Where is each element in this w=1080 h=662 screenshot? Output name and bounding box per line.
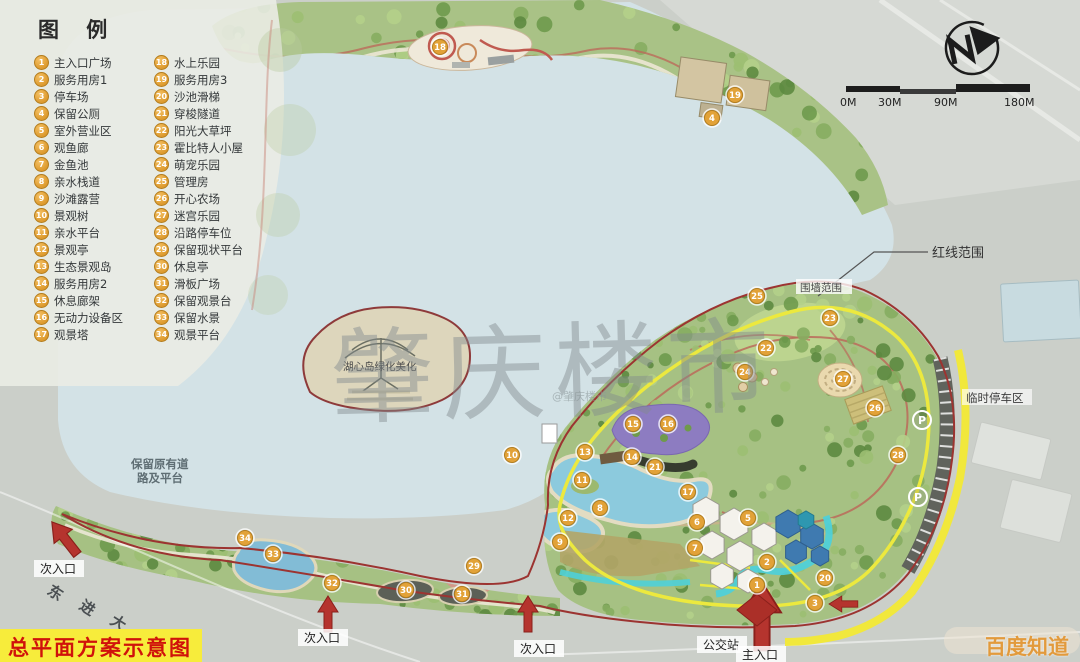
legend-item: 4保留公厕: [34, 105, 152, 122]
legend-item-label: 管理房: [174, 174, 209, 190]
secondary-entrance-label: 次入口: [520, 642, 556, 656]
legend-item: 25管理房: [154, 173, 272, 190]
legend-badge: 26: [154, 191, 169, 206]
legend-item-label: 沿路停车位: [174, 225, 232, 241]
legend-badge: 19: [154, 72, 169, 87]
map-marker-number: 24: [739, 368, 751, 378]
map-marker: 17: [679, 483, 697, 501]
map-marker: 3: [806, 594, 824, 612]
legend-item: 32保留观景台: [154, 292, 272, 309]
legend-badge: 27: [154, 208, 169, 223]
map-marker-number: 9: [557, 538, 563, 548]
legend-badge: 33: [154, 310, 169, 325]
legend-item: 31滑板广场: [154, 275, 272, 292]
map-marker: 11: [573, 471, 591, 489]
legend-item: 29保留现状平台: [154, 241, 272, 258]
legend-item-label: 保留水景: [174, 310, 220, 326]
legend-item: 9沙滩露营: [34, 190, 152, 207]
red-line-label: 红线范围: [932, 245, 984, 261]
map-marker-number: 21: [649, 463, 661, 473]
map-marker: 18: [431, 38, 449, 56]
legend-badge: 31: [154, 276, 169, 291]
hex-building: [811, 546, 828, 566]
map-marker: 30: [397, 581, 415, 599]
parking-symbol: P: [914, 491, 922, 504]
legend-item-label: 开心农场: [174, 191, 220, 207]
legend-item-label: 景观树: [54, 208, 89, 224]
map-marker-number: 19: [729, 91, 741, 101]
legend-item: 18水上乐园: [154, 54, 272, 71]
map-marker-number: 22: [760, 344, 772, 354]
legend-badge: 3: [34, 89, 49, 104]
map-marker-number: 20: [819, 574, 831, 584]
legend-item: 20沙池滑梯: [154, 88, 272, 105]
parking-marker: P: [909, 488, 927, 506]
legend-item: 16无动力设备区: [34, 309, 152, 326]
map-marker-number: 8: [597, 504, 603, 514]
map-marker-number: 12: [562, 514, 574, 524]
scale-0: 0M: [840, 96, 857, 109]
legend-item: 33保留水景: [154, 309, 272, 326]
map-marker: 28: [889, 446, 907, 464]
legend-badge: 32: [154, 293, 169, 308]
map-marker-number: 1: [754, 581, 760, 591]
legend-item-label: 保留现状平台: [174, 242, 243, 258]
legend-item: 11亲水平台: [34, 224, 152, 241]
map-marker-number: 16: [662, 420, 674, 430]
legend-item-label: 景观亭: [54, 242, 89, 258]
legend-badge: 1: [34, 55, 49, 70]
legend-title: 图 例: [38, 14, 274, 44]
legend-badge: 11: [34, 225, 49, 240]
legend-item-label: 休息亭: [174, 259, 209, 275]
legend-item: 1主入口广场: [34, 54, 152, 71]
legend-item-label: 室外营业区: [54, 123, 112, 139]
map-marker: 32: [323, 574, 341, 592]
map-marker: 13: [576, 443, 594, 461]
legend-item-label: 亲水平台: [54, 225, 100, 241]
map-marker: 24: [736, 363, 754, 381]
legend-badge: 21: [154, 106, 169, 121]
map-marker-number: 32: [326, 579, 338, 589]
map-marker-number: 13: [579, 448, 591, 458]
legend-badge: 30: [154, 259, 169, 274]
legend-badge: 20: [154, 89, 169, 104]
legend-item: 10景观树: [34, 207, 152, 224]
legend-badge: 14: [34, 276, 49, 291]
legend-item-label: 沙池滑梯: [174, 89, 220, 105]
map-marker-number: 14: [626, 453, 638, 463]
map-marker-number: 31: [456, 590, 468, 600]
map-marker-number: 6: [694, 518, 700, 528]
legend-badge: 22: [154, 123, 169, 138]
map-marker: 26: [866, 399, 884, 417]
map-marker: 15: [624, 415, 642, 433]
legend-item: 12景观亭: [34, 241, 152, 258]
legend-item: 3停车场: [34, 88, 152, 105]
map-marker: 14: [623, 448, 641, 466]
map-marker: 2: [758, 553, 776, 571]
legend-item-label: 服务用房3: [174, 72, 227, 88]
legend-item-label: 观鱼廊: [54, 140, 89, 156]
legend-item-label: 休息廊架: [54, 293, 100, 309]
legend-item-label: 服务用房1: [54, 72, 107, 88]
main-entrance-label: 主入口: [742, 648, 778, 662]
map-marker: 23: [821, 309, 839, 327]
map-marker: 7: [686, 539, 704, 557]
legend-badge: 8: [34, 174, 49, 189]
keep-road-label-2: 路及平台: [137, 471, 183, 485]
map-marker-number: 28: [892, 451, 904, 461]
map-marker: 9: [551, 533, 569, 551]
legend-item-label: 主入口广场: [54, 55, 112, 71]
legend-badge: 15: [34, 293, 49, 308]
legend-badge: 13: [34, 259, 49, 274]
scale-90: 90M: [934, 96, 958, 109]
map-marker-number: 34: [239, 534, 251, 544]
legend-item-label: 服务用房2: [54, 276, 107, 292]
map-marker: 21: [646, 458, 664, 476]
legend-badge: 17: [34, 327, 49, 342]
map-marker: 5: [739, 509, 757, 527]
map-marker: 16: [659, 415, 677, 433]
legend-item: 2服务用房1: [34, 71, 152, 88]
legend-badge: 5: [34, 123, 49, 138]
building-block: [1001, 280, 1080, 342]
legend-item: 17观景塔: [34, 326, 152, 343]
legend-badge: 34: [154, 327, 169, 342]
map-marker-number: 17: [682, 488, 694, 498]
map-marker: 12: [559, 509, 577, 527]
legend-item-label: 霍比特人小屋: [174, 140, 243, 156]
legend-badge: 25: [154, 174, 169, 189]
temp-parking-label: 临时停车区: [966, 391, 1024, 405]
map-marker-number: 25: [751, 292, 763, 302]
secondary-entrance-label: 次入口: [304, 631, 340, 645]
legend-item: 27迷宫乐园: [154, 207, 272, 224]
map-marker: 25: [748, 287, 766, 305]
map-marker-number: 15: [627, 420, 639, 430]
map-marker: 10: [503, 446, 521, 464]
map-marker-number: 4: [709, 114, 715, 124]
legend-item: 28沿路停车位: [154, 224, 272, 241]
legend-item-label: 金鱼池: [54, 157, 89, 173]
legend-item: 6观鱼廊: [34, 139, 152, 156]
legend-item-label: 亲水栈道: [54, 174, 100, 190]
map-marker-number: 2: [764, 558, 770, 568]
legend-item-label: 观景平台: [174, 327, 220, 343]
map-marker-number: 26: [869, 404, 881, 414]
legend-badge: 24: [154, 157, 169, 172]
legend-badge: 4: [34, 106, 49, 121]
map-marker-number: 3: [812, 599, 818, 609]
map-marker-number: 29: [468, 562, 480, 572]
legend-item: 15休息廊架: [34, 292, 152, 309]
legend-badge: 2: [34, 72, 49, 87]
scale-30: 30M: [878, 96, 902, 109]
map-marker-number: 5: [745, 514, 751, 524]
legend-item-label: 迷宫乐园: [174, 208, 220, 224]
legend-item: 30休息亭: [154, 258, 272, 275]
legend-item-label: 阳光大草坪: [174, 123, 232, 139]
legend-item: 19服务用房3: [154, 71, 272, 88]
map-marker: 31: [453, 585, 471, 603]
map-marker-number: 33: [267, 550, 279, 560]
map-marker-number: 7: [692, 544, 698, 554]
map-marker: 20: [816, 569, 834, 587]
plan-title-text: 总平面方案示意图: [8, 636, 192, 660]
map-marker: 34: [236, 529, 254, 547]
legend-item: 23霍比特人小屋: [154, 139, 272, 156]
map-marker: 29: [465, 557, 483, 575]
map-marker: 1: [748, 576, 766, 594]
map-marker: 22: [757, 339, 775, 357]
gate-structure: [542, 424, 557, 443]
legend-item-label: 滑板广场: [174, 276, 220, 292]
map-marker-number: 30: [400, 586, 412, 596]
legend-item: 24萌宠乐园: [154, 156, 272, 173]
legend-item: 7金鱼池: [34, 156, 152, 173]
legend-badge: 9: [34, 191, 49, 206]
legend-badge: 23: [154, 140, 169, 155]
legend-list: 1主入口广场2服务用房13停车场4保留公厕5室外营业区6观鱼廊7金鱼池8亲水栈道…: [34, 54, 274, 346]
legend-item-label: 保留公厕: [54, 106, 100, 122]
legend-badge: 7: [34, 157, 49, 172]
legend-item-label: 穿梭隧道: [174, 106, 220, 122]
bus-stop-label: 公交站: [703, 637, 739, 652]
map-marker: 4: [703, 109, 721, 127]
hex-building: [798, 511, 814, 529]
map-marker: 33: [264, 545, 282, 563]
map-marker-number: 27: [837, 375, 849, 385]
legend-item-label: 沙滩露营: [54, 191, 100, 207]
legend-item-label: 保留观景台: [174, 293, 232, 309]
legend-item: 26开心农场: [154, 190, 272, 207]
map-marker: 19: [726, 86, 744, 104]
map-marker-number: 18: [434, 43, 446, 53]
map-marker-number: 10: [506, 451, 518, 461]
legend-item: 13生态景观岛: [34, 258, 152, 275]
legend-badge: 18: [154, 55, 169, 70]
legend-item: 5室外营业区: [34, 122, 152, 139]
legend-item: 22阳光大草坪: [154, 122, 272, 139]
island-label: 湖心岛绿化美化: [343, 360, 417, 373]
legend-item-label: 无动力设备区: [54, 310, 123, 326]
legend-item: 34观景平台: [154, 326, 272, 343]
legend-item-label: 生态景观岛: [54, 259, 112, 275]
legend-badge: 16: [34, 310, 49, 325]
legend-item-label: 水上乐园: [174, 55, 220, 71]
legend-badge: 6: [34, 140, 49, 155]
map-marker-number: 23: [824, 314, 836, 324]
keep-road-label-1: 保留原有道: [130, 457, 189, 471]
legend-badge: 28: [154, 225, 169, 240]
map-marker-number: 11: [576, 476, 588, 486]
map-marker: 27: [834, 370, 852, 388]
legend-badge: 10: [34, 208, 49, 223]
wall-label: 围墙范围: [800, 281, 842, 294]
legend-item: 21穿梭隧道: [154, 105, 272, 122]
legend-item-label: 停车场: [54, 89, 89, 105]
legend: 图 例 1主入口广场2服务用房13停车场4保留公厕5室外营业区6观鱼廊7金鱼池8…: [34, 14, 274, 346]
plan-title: 总平面方案示意图: [0, 629, 202, 662]
map-marker: 8: [591, 499, 609, 517]
legend-item-label: 萌宠乐园: [174, 157, 220, 173]
watermark-bottom-right: 百度知道: [985, 631, 1069, 661]
parking-marker: P: [913, 411, 931, 429]
legend-item-label: 观景塔: [54, 327, 89, 343]
scale-180: 180M: [1004, 96, 1035, 109]
parking-symbol: P: [918, 414, 926, 427]
secondary-entrance-label: 次入口: [40, 562, 76, 576]
legend-badge: 12: [34, 242, 49, 257]
map-marker: 6: [688, 513, 706, 531]
watermark-small: @肇庆楼市: [552, 388, 607, 404]
legend-item: 8亲水栈道: [34, 173, 152, 190]
legend-badge: 29: [154, 242, 169, 257]
legend-item: 14服务用房2: [34, 275, 152, 292]
site-plan-image: 湖心岛绿化美化 红线范围 围墙范围 临时停车区 保留原有道 路及平台 次入口 次…: [0, 0, 1080, 662]
